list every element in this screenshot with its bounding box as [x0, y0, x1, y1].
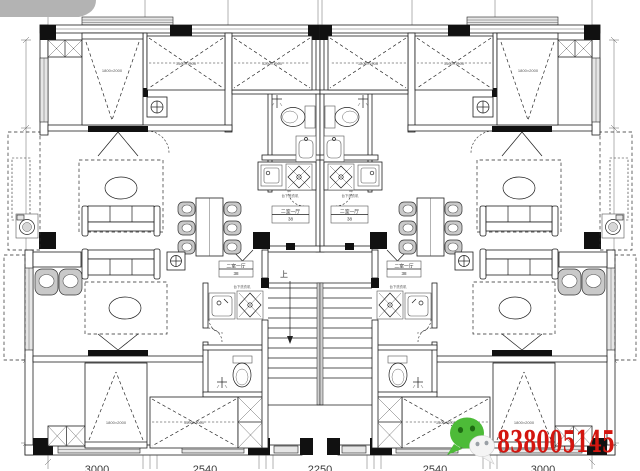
gas-stove: [237, 291, 263, 319]
sofa-upper: [82, 206, 160, 236]
roof-band: [82, 17, 173, 25]
dimension-value: 3000: [531, 464, 555, 471]
bed-size-label: 1500×1900: [176, 61, 197, 66]
stair-up-label: 上: [280, 270, 288, 279]
closet-vertical: [238, 397, 263, 448]
armchairs: [35, 269, 82, 295]
kitchen-sink: [261, 165, 282, 186]
bed-size-label: 1500×1900: [444, 61, 465, 66]
sofa-lower: [82, 249, 160, 279]
unit-tag-type: 二室一厅: [281, 208, 300, 215]
plan-left-half: [4, 0, 320, 469]
bed-double: [85, 363, 147, 448]
tv-unit-upper: [88, 126, 148, 156]
kitchen-note: 台下洗衣机: [342, 193, 360, 198]
unit-tag-area: 38: [347, 217, 353, 222]
kitchen-lower: [209, 291, 263, 333]
sink: [296, 136, 316, 162]
toilet: [233, 356, 252, 387]
watermark-id-text: 838005145: [497, 425, 615, 460]
kitchen-upper: [258, 162, 316, 206]
unit-tag-area: 38: [401, 271, 407, 276]
unit-tag-area: 38: [233, 271, 239, 276]
closet: [48, 40, 82, 57]
vanity: [209, 293, 235, 319]
tv-unit-lower: [88, 334, 148, 356]
unit-tag-type: 二室一厅: [340, 208, 359, 215]
floor-drain-symbol: [217, 377, 227, 388]
bed-size-label: 1800×2000: [518, 68, 539, 73]
washing-machine: [16, 214, 38, 238]
bedroom-corner-bottom: [48, 363, 147, 448]
bedroom-mid-bottom: [150, 397, 263, 448]
toilet: [281, 106, 315, 128]
dimension-value: 2250: [308, 464, 332, 471]
shower-symbol: [272, 95, 282, 108]
watermark: 838005145: [447, 418, 615, 465]
balcony-upper: [8, 132, 40, 250]
dimension-value: 2540: [423, 464, 447, 471]
bed-size-label: 1800×2000: [106, 420, 127, 425]
bed-size-label: 1800×2000: [102, 68, 123, 73]
living-room-upper: [79, 160, 163, 236]
corner-banner-fragment: [0, 0, 96, 17]
lamp-table: [167, 252, 185, 270]
floor-plan-screenshot: 上 1800×2000 1500×1900 1200×1900 1800×200…: [0, 0, 640, 471]
unit-tag-type: 二室一厅: [394, 263, 413, 270]
unit-tag-type: 二室一厅: [226, 263, 245, 270]
kitchen-note: 台下洗衣机: [282, 193, 300, 198]
dimension-value: 3000: [85, 464, 109, 471]
stair-treads: [268, 288, 317, 378]
dining-set: [178, 198, 241, 256]
bed-size-label: 1500×2000: [184, 420, 205, 425]
balcony-lower: [4, 255, 25, 360]
gas-stove: [286, 164, 312, 190]
kitchen-note: 台下洗衣机: [234, 284, 252, 289]
unit-tag-area: 38: [288, 217, 294, 222]
bed-size-label: 1200×1900: [358, 61, 379, 66]
bathroom-lower: [217, 356, 252, 388]
bottom-dimension-ticks: [45, 455, 273, 469]
bed-double: [82, 33, 143, 125]
bed-size-label: 1200×1900: [262, 61, 283, 66]
kitchen-note: 台下洗衣机: [390, 284, 408, 289]
nightstand-lamp: [147, 97, 167, 117]
stair-down-arrow-icon: [287, 336, 293, 344]
plan-right-half-mirror: [320, 0, 636, 469]
living-room-lower: [33, 249, 185, 356]
dimension-value: 2540: [193, 464, 217, 471]
floor-plan-drawing: 上 1800×2000 1500×1900 1200×1900 1800×200…: [0, 0, 640, 471]
closet: [48, 426, 85, 446]
staircase: [261, 250, 320, 448]
